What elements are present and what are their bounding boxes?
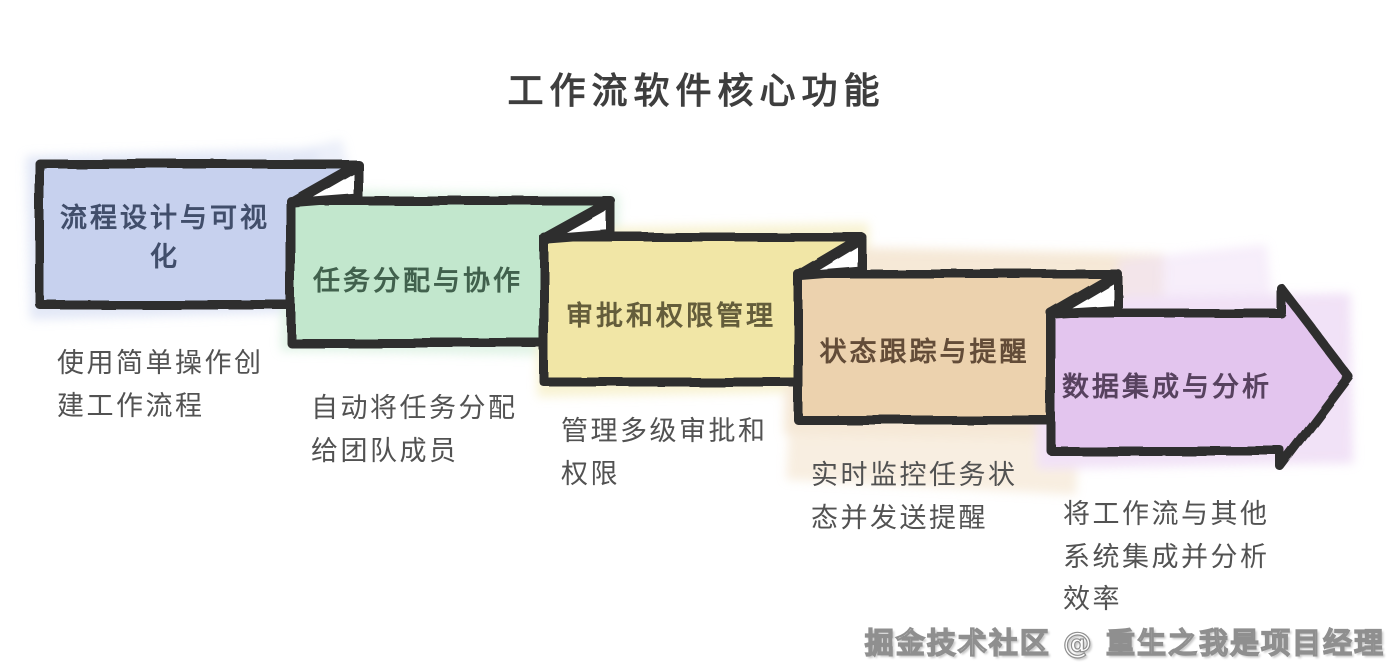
watermark: 掘金技术社区 @ 重生之我是项目经理 xyxy=(865,620,1385,662)
feature-description-3: 管理多级审批和权限 xyxy=(561,411,781,496)
feature-description-2: 自动将任务分配给团队成员 xyxy=(311,388,531,473)
feature-label-3: 审批和权限管理 xyxy=(546,297,796,336)
diagram-canvas: 工作流软件核心功能 xyxy=(0,0,1393,672)
feature-description-5: 将工作流与其他系统集成并分析效率 xyxy=(1063,494,1283,622)
feature-label-1: 流程设计与可视化 xyxy=(53,199,277,277)
feature-description-1: 使用简单操作创建工作流程 xyxy=(57,343,277,428)
feature-label-5: 数据集成与分析 xyxy=(1054,368,1280,407)
feature-description-4: 实时监控任务状态并发送提醒 xyxy=(811,455,1031,540)
feature-label-4: 状态跟踪与提醒 xyxy=(800,333,1049,372)
feature-label-2: 任务分配与协作 xyxy=(293,262,543,301)
